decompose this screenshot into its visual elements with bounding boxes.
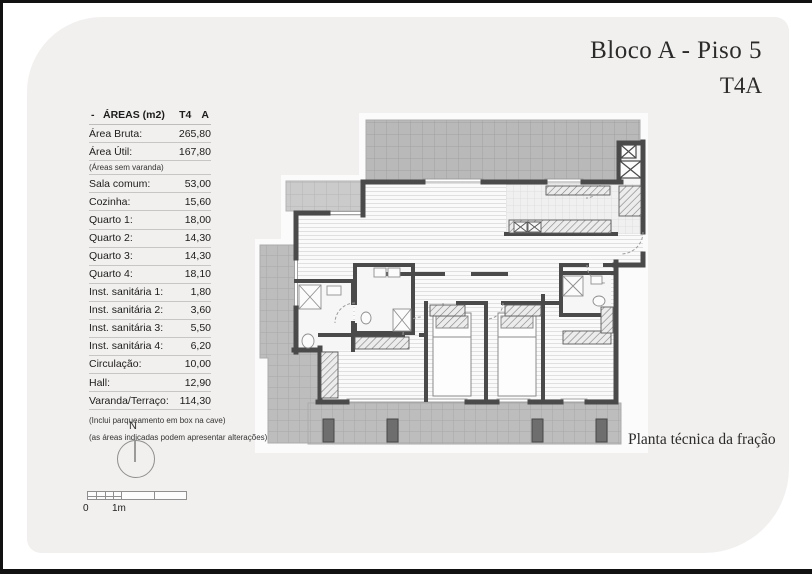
scale-tick [113,492,114,499]
area-label: Quarto 3: [89,250,133,262]
compass-icon [117,440,155,478]
wardrobe [430,305,465,316]
area-label: Circulação: [89,358,142,370]
sink [388,268,400,277]
area-label: Quarto 2: [89,232,133,244]
page-title: Bloco A - Piso 5 [462,37,762,65]
area-value: 3,60 [191,304,211,316]
footnote: (as áreas indicadas podem apresentar alt… [89,430,211,447]
area-row: Inst. sanitária 1:1,80 [89,284,211,302]
area-value: 265,80 [179,128,211,140]
sink [374,268,386,277]
area-label: Área Útil: [89,146,132,158]
scale-tick [105,492,106,499]
window [497,399,530,402]
scale-divider [121,492,122,499]
pillar [532,419,543,442]
terrace-bottom [308,403,621,444]
scale-bar [87,491,187,500]
area-value: 18,10 [185,268,211,280]
window [561,399,587,402]
area-row: Quarto 4:18,10 [89,266,211,284]
pillar [596,419,607,442]
area-label: Inst. sanitária 2: [89,304,163,316]
wardrobe [321,352,338,398]
plan-sheet: { "title": { "line1": "Bloco A - Piso 5"… [0,0,812,574]
area-value: 15,60 [185,196,211,208]
area-label: Cozinha: [89,196,130,208]
area-label: Hall: [89,377,110,389]
area-value: 12,90 [185,377,211,389]
window [545,179,583,182]
area-value: 14,30 [185,250,211,262]
areas-table-body: Área Bruta:265,80Área Útil:167,80(Áreas … [89,125,211,410]
area-label: Quarto 4: [89,268,133,280]
window [328,212,361,215]
area-row: Inst. sanitária 2:3,60 [89,302,211,320]
area-row: Área Útil:167,80 [89,143,211,161]
areas-footnotes: (Inclui parqueamento em box na cave)(as … [89,413,211,447]
header-dash: - [89,109,103,121]
footnote: (Inclui parqueamento em box na cave) [89,413,211,430]
area-value: 6,20 [191,340,211,352]
scale-tick [96,492,97,499]
area-label: Inst. sanitária 4: [89,340,163,352]
area-row: Sala comum:53,00 [89,175,211,193]
areas-table-header: - ÁREAS (m2) T4 A [89,107,211,125]
plan-caption: Planta técnica da fração [628,431,776,449]
areas-table-title: ÁREAS (m2) [103,109,179,121]
area-label: Área Bruta: [89,128,142,140]
wardrobe [355,337,409,349]
areas-table: - ÁREAS (m2) T4 A Área Bruta:265,80Área … [89,107,211,447]
area-value: 10,00 [185,358,211,370]
area-label: Varanda/Terraço: [89,395,169,407]
area-value: 53,00 [185,178,211,190]
scale-one-meter-label: 1m [112,503,126,514]
pillar [387,419,398,442]
area-label: Quarto 1: [89,214,133,226]
area-value: 5,50 [191,322,211,334]
area-value: 18,00 [185,214,211,226]
pillar [323,419,334,442]
window [423,179,483,182]
wardrobe [505,305,541,316]
window [347,399,467,402]
area-row: Inst. sanitária 3:5,50 [89,320,211,338]
area-row: Circulação:10,00 [89,356,211,374]
area-value: 114,30 [180,395,211,407]
compass-north-label: N [129,420,137,432]
area-value: 1,80 [191,286,211,298]
area-row: Quarto 3:14,30 [89,248,211,266]
scale-divider [154,492,155,499]
sink [327,286,341,295]
compass-needle [134,441,136,462]
type-column-header: T4 [179,109,201,121]
area-label: Inst. sanitária 1: [89,286,163,298]
area-row: Varanda/Terraço:114,30 [89,392,211,410]
area-value: 14,30 [185,232,211,244]
terrace-upper-left [286,181,363,211]
toilet [593,296,605,306]
area-value: 167,80 [179,146,211,158]
pantry-shelves [619,186,641,216]
laundry-unit [601,307,613,333]
unit-type-title: T4A [462,73,762,99]
toilet [361,312,371,324]
bed [498,313,536,396]
area-row: Cozinha:15,60 [89,193,211,211]
area-label: Inst. sanitária 3: [89,322,163,334]
fraction-column-header: A [201,109,211,121]
terrace-top [366,120,640,180]
scale-zero-label: 0 [83,503,89,514]
areas-note-row: (Áreas sem varanda) [89,161,211,175]
title-block: Bloco A - Piso 5 T4A [462,37,762,99]
area-row: Quarto 2:14,30 [89,230,211,248]
area-row: Área Bruta:265,80 [89,125,211,143]
bed [433,313,471,396]
area-row: Quarto 1:18,00 [89,211,211,229]
area-label: Sala comum: [89,178,150,190]
area-row: Inst. sanitária 4:6,20 [89,338,211,356]
area-row: Hall:12,90 [89,374,211,392]
kitchen-counter [546,186,610,195]
area-label: (Áreas sem varanda) [89,163,164,172]
toilet [302,334,314,348]
sink [591,276,602,284]
